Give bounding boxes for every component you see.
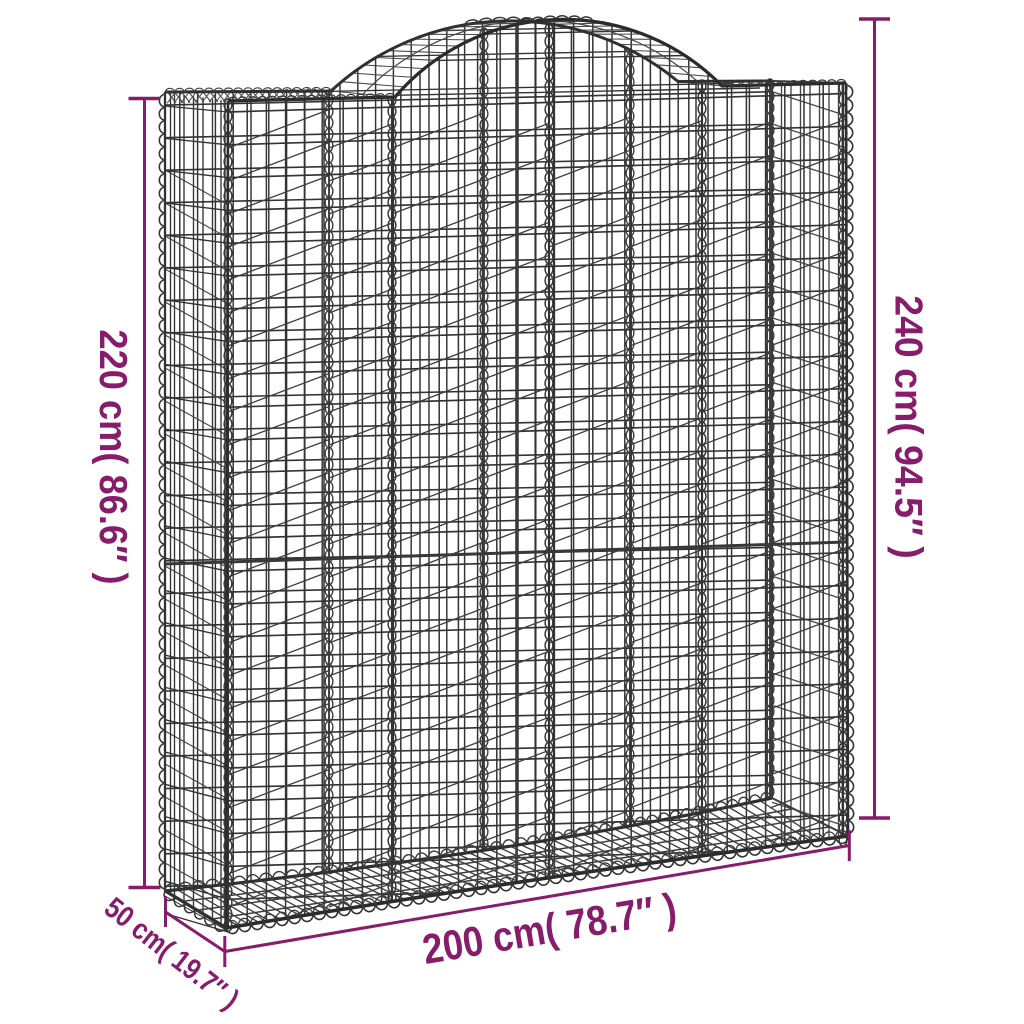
svg-text:240 cm( 94.5″ ): 240 cm( 94.5″ ) [887,295,931,558]
svg-text:220 cm( 86.6″ ): 220 cm( 86.6″ ) [92,329,135,584]
